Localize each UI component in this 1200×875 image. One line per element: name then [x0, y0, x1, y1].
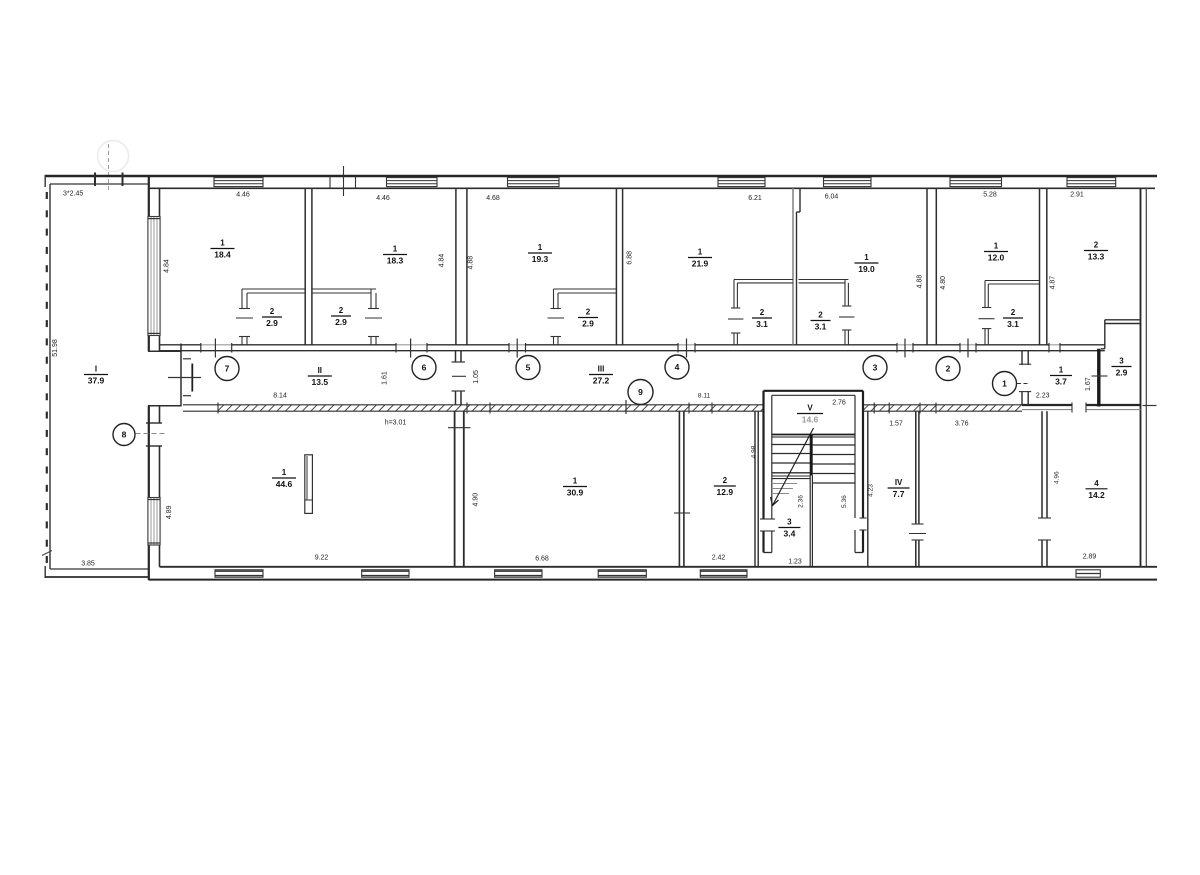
svg-text:4.98: 4.98	[751, 445, 758, 458]
svg-text:2.9: 2.9	[266, 318, 278, 328]
svg-text:14.6: 14.6	[802, 415, 819, 425]
svg-text:V: V	[807, 404, 813, 413]
svg-text:4: 4	[1094, 479, 1099, 488]
svg-text:21.9: 21.9	[692, 259, 709, 269]
svg-text:1: 1	[220, 239, 225, 248]
svg-text:19.0: 19.0	[858, 264, 875, 274]
svg-text:27.2: 27.2	[593, 376, 610, 386]
svg-text:3.1: 3.1	[756, 319, 768, 329]
svg-text:3.76: 3.76	[955, 420, 969, 427]
svg-text:9: 9	[638, 387, 643, 397]
svg-text:3*2.45: 3*2.45	[63, 191, 83, 198]
svg-text:h=3.01: h=3.01	[385, 420, 407, 427]
svg-text:2: 2	[818, 311, 823, 320]
svg-text:4.88: 4.88	[467, 256, 474, 270]
svg-text:2: 2	[946, 364, 951, 374]
svg-text:2.23: 2.23	[1036, 393, 1050, 400]
svg-text:3.85: 3.85	[81, 561, 95, 568]
svg-text:8: 8	[122, 430, 127, 440]
svg-text:7.7: 7.7	[893, 489, 905, 499]
svg-text:1: 1	[864, 253, 869, 262]
svg-text:2: 2	[1011, 308, 1016, 317]
svg-text:3: 3	[873, 363, 878, 373]
svg-text:II: II	[318, 366, 322, 375]
svg-text:19.3: 19.3	[532, 254, 549, 264]
svg-text:18.4: 18.4	[214, 250, 231, 260]
svg-text:2: 2	[270, 307, 275, 316]
svg-text:4.96: 4.96	[1054, 471, 1061, 484]
svg-text:2.9: 2.9	[335, 317, 347, 327]
svg-text:4.84: 4.84	[164, 259, 171, 273]
svg-text:44.6: 44.6	[276, 479, 293, 489]
svg-text:4.90: 4.90	[473, 493, 480, 507]
svg-text:3: 3	[787, 518, 792, 527]
svg-text:1: 1	[573, 477, 578, 486]
svg-text:6.21: 6.21	[748, 195, 762, 202]
svg-text:2: 2	[723, 476, 728, 485]
svg-text:3.7: 3.7	[1055, 377, 1067, 387]
svg-text:2: 2	[760, 308, 765, 317]
svg-text:I: I	[95, 365, 97, 374]
svg-text:III: III	[598, 365, 605, 374]
svg-text:4.23: 4.23	[868, 484, 875, 497]
svg-text:1.61: 1.61	[381, 371, 388, 385]
svg-text:2.42: 2.42	[712, 555, 726, 562]
svg-text:6.68: 6.68	[535, 556, 549, 563]
svg-text:30.9: 30.9	[567, 488, 584, 498]
svg-text:2.76: 2.76	[832, 399, 846, 406]
svg-text:3.1: 3.1	[1007, 319, 1019, 329]
svg-text:4.46: 4.46	[376, 195, 390, 202]
svg-text:37.9: 37.9	[88, 376, 105, 386]
svg-text:8.14: 8.14	[273, 393, 287, 400]
svg-text:6: 6	[422, 363, 427, 373]
svg-text:51.98: 51.98	[52, 339, 59, 357]
svg-text:7: 7	[225, 364, 230, 374]
svg-text:2.89: 2.89	[1083, 553, 1097, 560]
svg-text:1: 1	[538, 243, 543, 252]
svg-text:12.0: 12.0	[988, 253, 1005, 263]
svg-text:1: 1	[1002, 379, 1007, 389]
svg-text:IV: IV	[895, 478, 903, 487]
svg-text:13.5: 13.5	[312, 377, 329, 387]
svg-text:4.87: 4.87	[1049, 276, 1056, 290]
svg-text:1.05: 1.05	[473, 370, 480, 384]
svg-text:1: 1	[698, 248, 703, 257]
svg-text:12.9: 12.9	[717, 487, 734, 497]
svg-text:2: 2	[339, 306, 344, 315]
svg-text:4: 4	[675, 362, 680, 372]
svg-text:1.67: 1.67	[1085, 377, 1092, 391]
svg-text:2.9: 2.9	[582, 319, 594, 329]
svg-text:5: 5	[526, 363, 531, 373]
svg-text:2.91: 2.91	[1070, 191, 1084, 198]
svg-text:5.28: 5.28	[983, 191, 997, 198]
svg-text:2: 2	[586, 308, 591, 317]
svg-text:9.22: 9.22	[315, 554, 329, 561]
svg-text:18.3: 18.3	[387, 256, 404, 266]
svg-text:4.80: 4.80	[940, 276, 947, 290]
svg-text:1: 1	[1059, 366, 1064, 375]
svg-text:6.88: 6.88	[626, 251, 633, 265]
svg-text:1.23: 1.23	[788, 559, 802, 566]
svg-text:4.46: 4.46	[236, 192, 250, 199]
svg-text:8.11: 8.11	[698, 392, 711, 399]
svg-text:2.36: 2.36	[798, 495, 805, 508]
svg-text:6.04: 6.04	[825, 194, 839, 201]
svg-text:1: 1	[282, 468, 287, 477]
svg-text:4.68: 4.68	[486, 195, 500, 202]
svg-text:5.36: 5.36	[841, 495, 848, 508]
svg-text:2: 2	[1094, 241, 1099, 250]
svg-text:13.3: 13.3	[1088, 252, 1105, 262]
svg-text:3: 3	[1119, 357, 1124, 366]
svg-text:4.89: 4.89	[166, 505, 173, 519]
svg-text:1: 1	[994, 242, 999, 251]
svg-text:1.57: 1.57	[889, 420, 903, 427]
svg-text:3.4: 3.4	[783, 529, 795, 539]
svg-text:2.9: 2.9	[1116, 368, 1128, 378]
svg-text:4.88: 4.88	[917, 275, 924, 289]
svg-text:1: 1	[393, 245, 398, 254]
svg-text:3.1: 3.1	[815, 322, 827, 332]
svg-text:4.84: 4.84	[439, 254, 446, 268]
svg-text:14.2: 14.2	[1088, 490, 1105, 500]
